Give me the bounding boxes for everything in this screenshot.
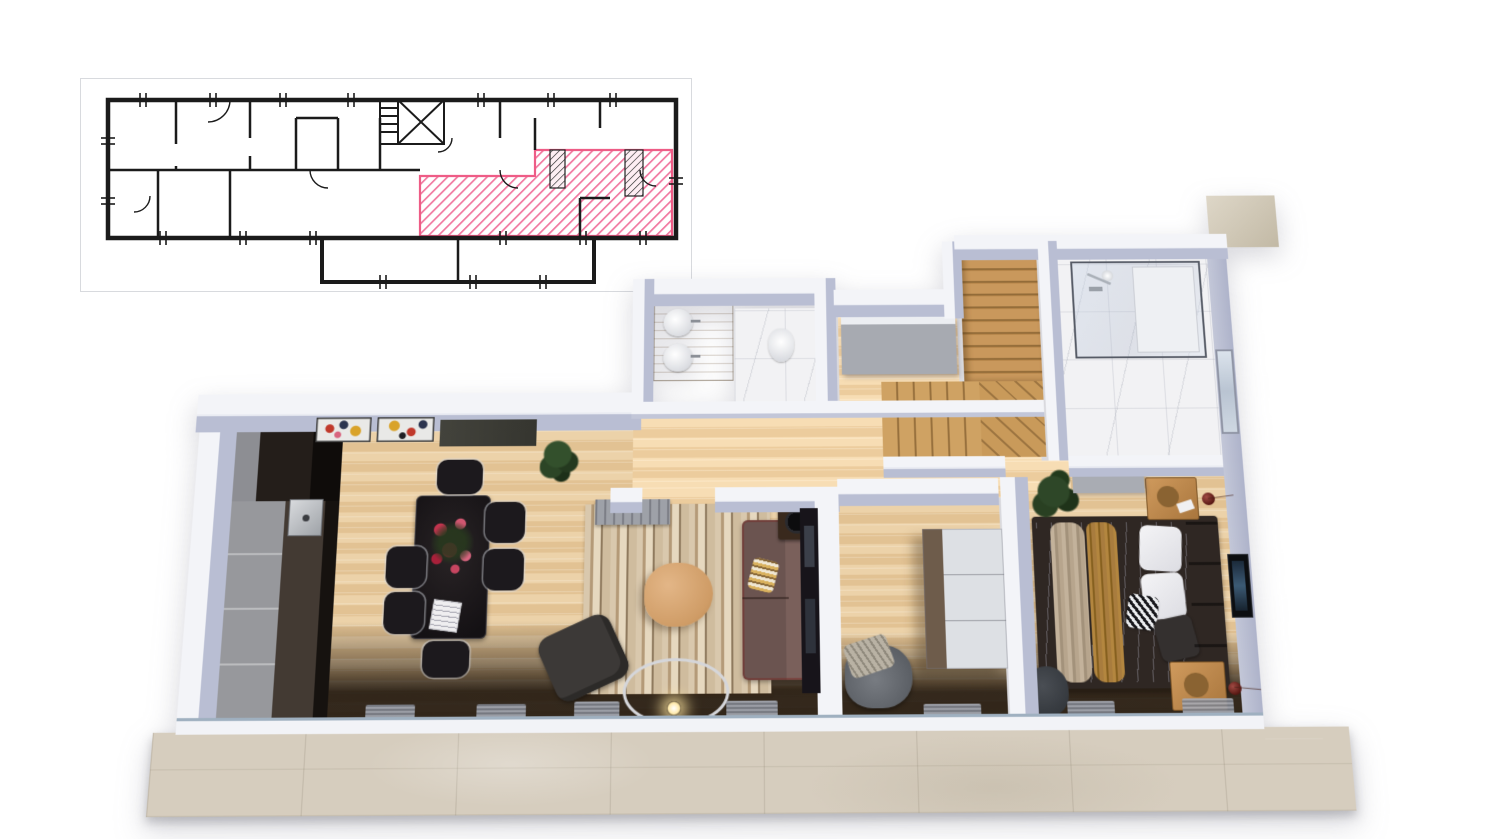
artwork-frame bbox=[376, 417, 434, 442]
sofa-cushion-seam bbox=[742, 597, 789, 599]
dining-chair bbox=[421, 641, 469, 678]
flower-centerpiece bbox=[420, 508, 485, 581]
dark-wall-panel bbox=[439, 419, 537, 446]
media-wall-band bbox=[800, 508, 821, 693]
lamp-glow bbox=[667, 701, 681, 716]
vanity-counter bbox=[653, 301, 733, 381]
staircase-landing bbox=[979, 381, 1046, 457]
wall-kids-north bbox=[837, 478, 999, 506]
nightstand-tray bbox=[1183, 673, 1209, 698]
wall-bathroom-main-west bbox=[631, 279, 654, 418]
wardrobe-seam bbox=[945, 620, 1006, 621]
picture-frame bbox=[805, 599, 816, 653]
shower-tray bbox=[1132, 266, 1200, 352]
terrace-walkway bbox=[146, 727, 1357, 818]
kitchen-sink bbox=[287, 499, 323, 536]
wardrobe-seam bbox=[944, 574, 1004, 575]
wall-topright-north bbox=[954, 234, 1228, 260]
wall-bedroom-north bbox=[1068, 455, 1224, 477]
closet-cabinets bbox=[841, 317, 957, 375]
wall-closet-north bbox=[834, 289, 960, 317]
tall-wardrobe bbox=[922, 529, 1008, 669]
tv-screen bbox=[1232, 561, 1248, 611]
artwork-frame bbox=[315, 417, 372, 442]
faucet bbox=[691, 320, 701, 323]
walk-in-shower bbox=[1070, 261, 1207, 359]
staircase-lower-flight bbox=[881, 381, 982, 457]
dining-chair bbox=[484, 502, 525, 543]
toilet bbox=[768, 328, 794, 361]
dining-chair bbox=[436, 460, 483, 495]
wall-bathroom-main-north bbox=[633, 278, 836, 306]
sink-round bbox=[664, 309, 693, 337]
wall-living-corridor-a bbox=[610, 488, 642, 513]
shower-mixer bbox=[1089, 287, 1103, 292]
stair-hatch bbox=[550, 150, 565, 188]
sphere-lamp bbox=[1228, 682, 1242, 695]
bed-pillow bbox=[1139, 525, 1181, 573]
sink-drain bbox=[302, 515, 309, 522]
nightstand-book bbox=[1176, 499, 1195, 513]
picture-frame bbox=[804, 526, 815, 567]
potted-plant-living bbox=[539, 434, 580, 484]
faucet bbox=[691, 355, 701, 358]
wall-stairs-south bbox=[883, 456, 1006, 478]
open-book bbox=[429, 599, 462, 633]
sofa-pillow-striped bbox=[747, 557, 780, 594]
render-canvas bbox=[0, 0, 1500, 839]
dining-chair bbox=[483, 549, 525, 591]
dining-chair bbox=[383, 592, 425, 634]
pouf-with-blanket bbox=[844, 645, 913, 709]
apartment-3d-render bbox=[145, 191, 1358, 830]
staircase-upper-flight bbox=[959, 246, 1042, 382]
nightstand bbox=[1145, 477, 1200, 520]
sink-round bbox=[663, 344, 692, 372]
wall-corridor-north bbox=[631, 400, 1044, 419]
